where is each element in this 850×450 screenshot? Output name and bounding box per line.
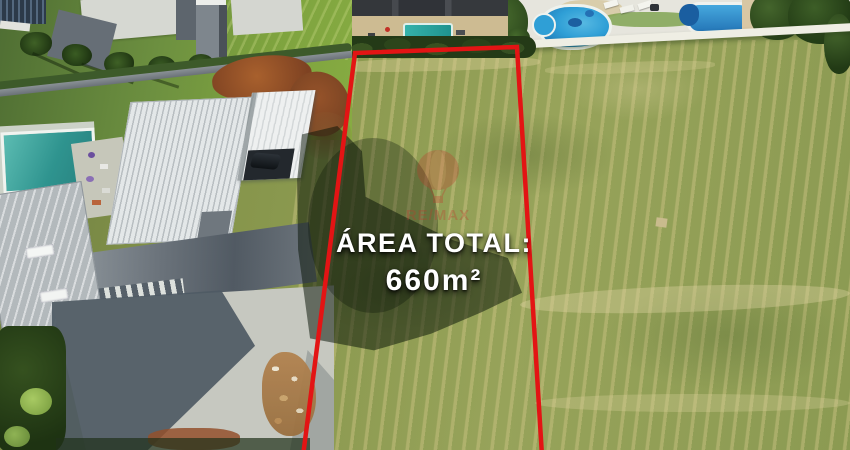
area-total-value: 660m²: [336, 264, 532, 297]
area-total-label: ÁREA TOTAL:: [336, 229, 532, 259]
lot-boundary: [0, 0, 850, 450]
aerial-listing-photo: RE/MAX ÁREA TOTAL: 660m²: [0, 0, 850, 450]
